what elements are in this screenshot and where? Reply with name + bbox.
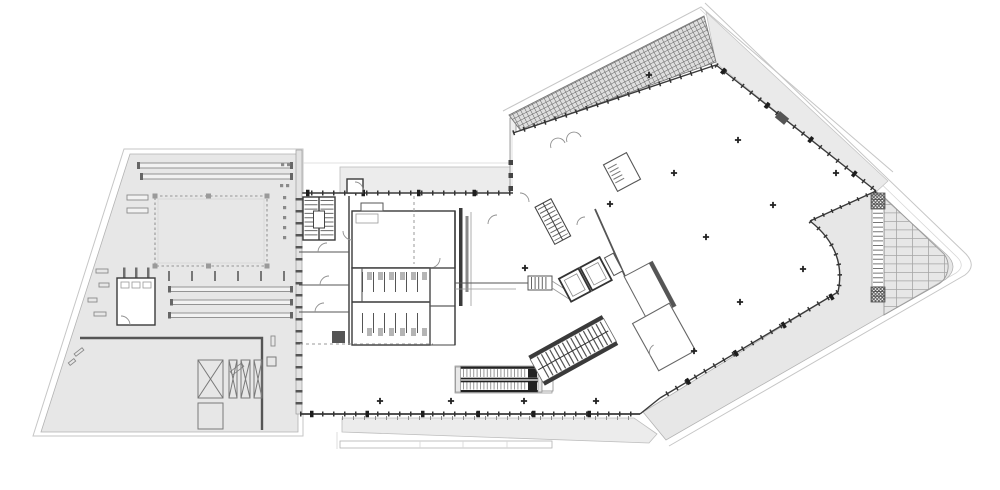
shaft-wall	[459, 208, 463, 306]
plant-room	[117, 278, 155, 325]
roof-bar	[170, 287, 291, 292]
service-stair-strip	[872, 195, 884, 302]
duct-block	[332, 331, 345, 343]
roof-bar	[142, 174, 291, 179]
floor-plan-canvas	[0, 0, 1000, 490]
south-terrace-strip	[342, 418, 657, 443]
roof-bar-small	[127, 208, 148, 213]
floor-plan-svg	[0, 0, 1000, 490]
escalator-drive	[528, 369, 537, 378]
roof-bar-small	[127, 195, 148, 200]
west-wing-roof-slab	[41, 154, 298, 432]
roof-bar	[172, 300, 291, 305]
escalator-drive	[528, 382, 537, 391]
stair-landing	[314, 211, 325, 228]
central-entrance-band	[340, 167, 513, 193]
west-wing	[41, 143, 298, 432]
entrance-vestibule	[347, 179, 363, 193]
roof-bar	[170, 313, 291, 318]
room-niche	[361, 203, 383, 211]
plinth-steps	[340, 441, 552, 448]
roof-bar	[139, 163, 291, 168]
